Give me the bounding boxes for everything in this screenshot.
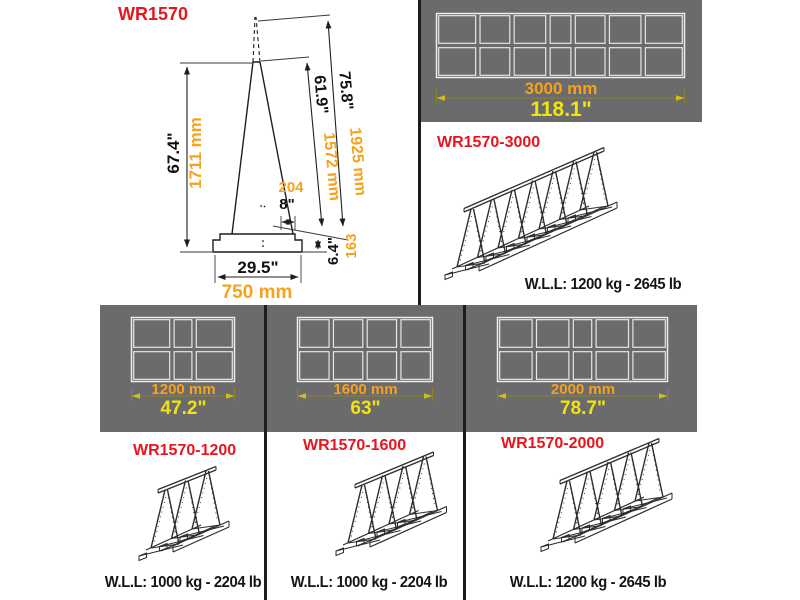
- profile-outline: [213, 62, 302, 252]
- wll-3000: W.L.L: 1200 kg - 2645 lb: [493, 276, 714, 294]
- dim-base-width-mm: 750 mm: [222, 282, 293, 303]
- divider-vertical-bottom-right: [463, 305, 466, 600]
- dim-height-mm: 1711 mm: [186, 117, 205, 189]
- rack-3d-drawing-3000: [450, 143, 628, 293]
- dim-base-height-in: 6.4": [325, 237, 342, 265]
- dim-slope-inner-in: 61.9": [310, 75, 330, 115]
- dim-base-width-in: 29.5": [237, 258, 278, 277]
- dim-base-height-mm: 163: [343, 233, 360, 258]
- rack-3d-drawing-1200: [138, 452, 246, 578]
- spec-sheet: WR1570: [0, 0, 800, 600]
- length-in-2000: 78.7": [498, 399, 668, 419]
- dim-slope-inner-mm: 1572 mm: [320, 132, 343, 202]
- dim-slope-outer-in: 75.8": [335, 71, 355, 111]
- length-in-1200: 47.2": [132, 399, 235, 419]
- dim-top-width-in: 8": [279, 196, 294, 213]
- length-in-3000: 118.1": [437, 99, 685, 121]
- dim-height-in: 67.4": [164, 132, 183, 173]
- dim-top-width-mm: 204: [278, 179, 304, 196]
- dim-slope-outer-mm: 1925 mm: [346, 127, 369, 197]
- length-mm-2000: 2000 mm: [498, 382, 668, 398]
- length-mm-1600: 1600 mm: [298, 382, 433, 398]
- wll-2000: W.L.L: 1200 kg - 2645 lb: [478, 574, 699, 592]
- profile-model-title: WR1570: [118, 5, 188, 24]
- divider-vertical-bottom-left: [264, 305, 267, 600]
- profile-apex-hidden-lines: [253, 17, 260, 62]
- profile-hidden-dots: [260, 205, 265, 247]
- rack-3d-drawing-1600: [333, 441, 455, 577]
- length-in-1600: 63": [298, 399, 433, 419]
- rack-3d-drawing-2000: [536, 433, 676, 579]
- length-mm-1200: 1200 mm: [132, 382, 235, 398]
- profile-cross-section-drawing: 67.4" 1711 mm 61.9" 1572 mm 75.8" 1925 m…: [95, 0, 395, 305]
- divider-vertical-top: [418, 0, 421, 305]
- dimension-lines: [187, 21, 343, 277]
- wll-1600: W.L.L: 1000 kg - 2204 lb: [259, 574, 480, 592]
- length-mm-3000: 3000 mm: [437, 80, 685, 98]
